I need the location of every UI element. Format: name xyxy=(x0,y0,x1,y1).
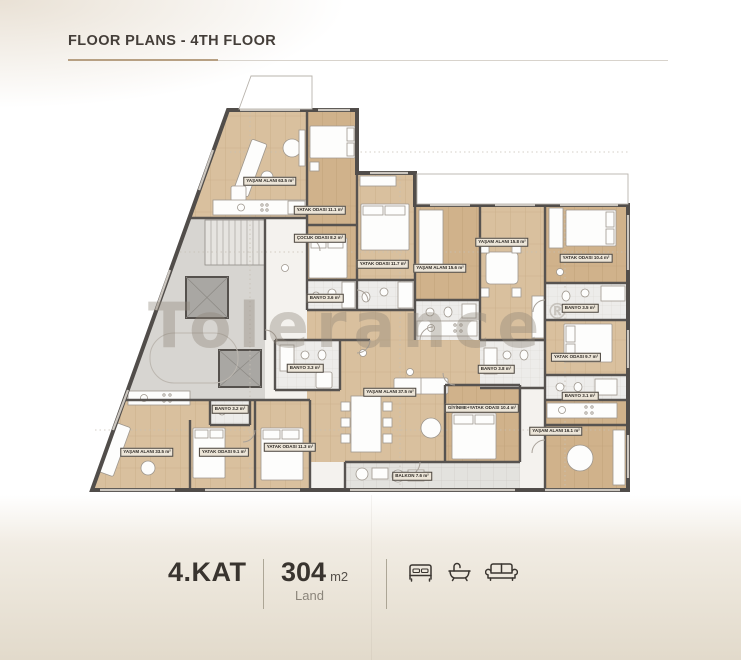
area-value: 304 xyxy=(281,557,326,587)
area-caption: Land xyxy=(295,588,324,603)
room-label: YAŞAM ALANI 37.5 m² xyxy=(363,388,416,397)
footer-divider xyxy=(386,559,387,609)
room-label: YAŞAM ALANI 16.1 m² xyxy=(529,427,582,436)
room-label: BANYO 3.1 m² xyxy=(562,392,599,401)
room-label: YAŞAM ALANI 15.6 m² xyxy=(413,264,466,273)
room-label: YATAK ODASI 9.7 m² xyxy=(551,353,601,362)
sofa-icon xyxy=(485,560,518,583)
area-info: 304m2 xyxy=(281,557,348,588)
room-label: YATAK ODASI 10.4 m² xyxy=(560,254,613,263)
room-label: ÇOCUK ODASI 8.2 m² xyxy=(294,234,346,243)
room-label: YATAK ODASI 11.1 m² xyxy=(294,206,346,215)
room-label: YATAK ODASI 9.1 m² xyxy=(199,448,249,457)
floor-plan-page: FLOOR PLANS - 4TH FLOOR xyxy=(0,0,741,660)
room-label: BALKON 7.6 m² xyxy=(392,472,432,481)
watermark-text: Tolerance xyxy=(148,289,546,362)
room-label: BANYO 3.8 m² xyxy=(478,365,515,374)
floor-label: 4.KAT xyxy=(168,557,247,588)
room-label: BANYO 3.3 m² xyxy=(287,364,324,373)
room-label: YATAK ODASI 11.3 m² xyxy=(264,443,316,452)
bed-icon xyxy=(407,560,434,583)
footer-panel-seam xyxy=(371,495,372,660)
footer-divider xyxy=(263,559,264,609)
watermark: Tolerance® xyxy=(148,295,568,357)
room-label: YAŞAM ALANI 63.5 m² xyxy=(243,177,296,186)
room-label: YAŞAM ALANI 33.5 m² xyxy=(120,448,173,457)
area-unit: m2 xyxy=(330,569,348,584)
room-label: BANYO 3.2 m² xyxy=(212,405,249,414)
amenity-icons xyxy=(407,560,518,583)
room-label: BANYO 3.5 m² xyxy=(562,304,599,313)
footer-band xyxy=(0,495,741,660)
room-label: GİYİNME+YATAK ODASI 10.4 m² xyxy=(445,404,519,413)
room-label: YATAK ODASI 11.7 m² xyxy=(357,260,409,269)
room-label: BANYO 3.6 m² xyxy=(307,294,344,303)
bathtub-icon xyxy=(447,560,472,583)
room-label: YAŞAM ALANI 15.8 m² xyxy=(475,238,528,247)
